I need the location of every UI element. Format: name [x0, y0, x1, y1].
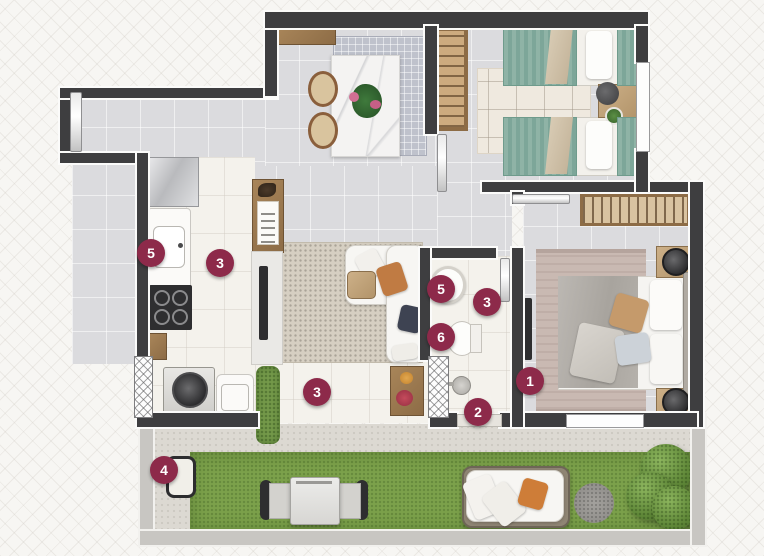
marker-terrace-access: 2: [464, 398, 492, 426]
floor-plan: 123334556: [0, 0, 764, 556]
marker-balcony-floor: 3: [303, 378, 331, 406]
marker-toilet: 6: [427, 323, 455, 351]
marker-bathroom-sink: 5: [427, 275, 455, 303]
marker-terrace-fixture: 4: [150, 456, 178, 484]
marker-kitchen-floor: 3: [206, 249, 234, 277]
marker-kitchen-sink: 5: [137, 239, 165, 267]
marker-layer: 123334556: [0, 0, 764, 556]
marker-suite-bedroom: 1: [516, 367, 544, 395]
marker-bathroom-floor: 3: [473, 288, 501, 316]
